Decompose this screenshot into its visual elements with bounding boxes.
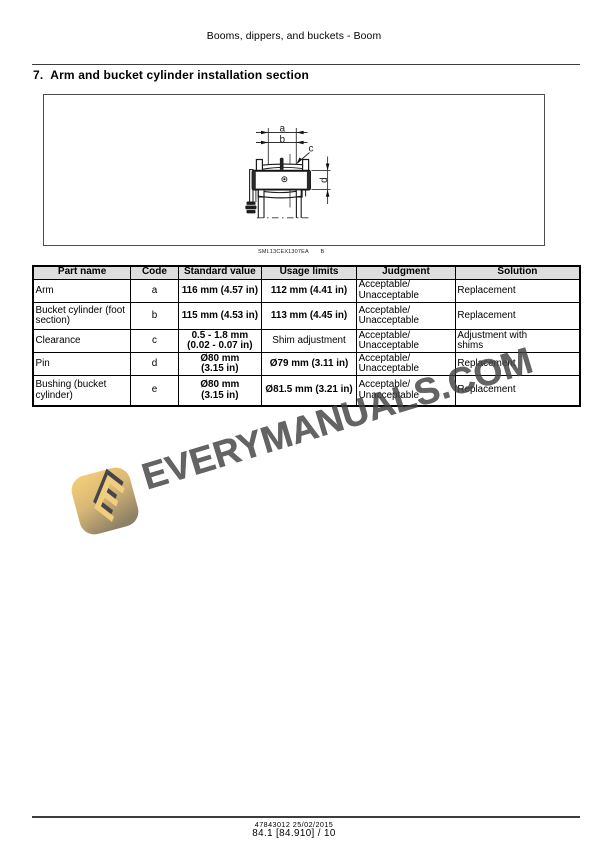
svg-text:a: a [280,124,286,135]
svg-text:d: d [319,177,330,183]
svg-text:b: b [280,134,286,145]
